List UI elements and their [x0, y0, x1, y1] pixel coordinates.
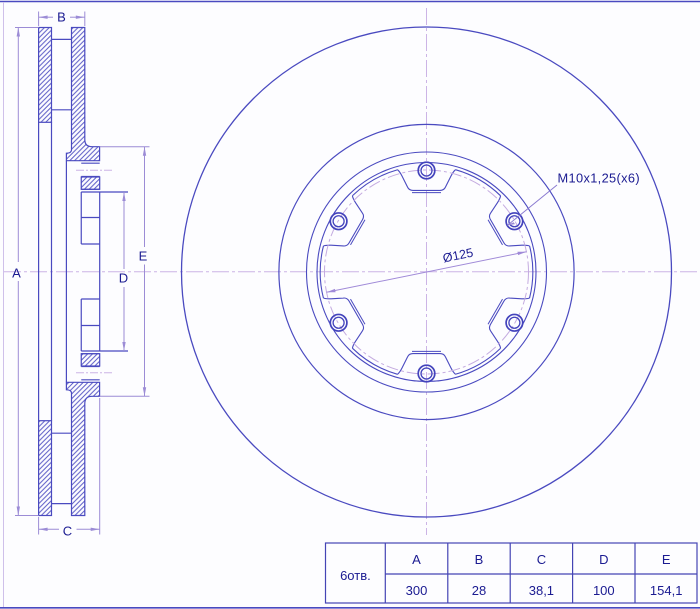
svg-text:300: 300	[406, 583, 428, 598]
svg-text:A: A	[12, 266, 21, 281]
svg-text:D: D	[119, 271, 128, 286]
svg-text:C: C	[63, 524, 72, 539]
svg-text:100: 100	[593, 583, 615, 598]
svg-text:D: D	[599, 552, 608, 567]
svg-text:6отв.: 6отв.	[340, 568, 371, 583]
svg-text:C: C	[537, 552, 546, 567]
svg-text:B: B	[475, 552, 484, 567]
svg-text:A: A	[412, 552, 421, 567]
svg-text:154,1: 154,1	[650, 583, 683, 598]
svg-text:E: E	[139, 249, 148, 264]
svg-text:M10x1,25(x6): M10x1,25(x6)	[558, 171, 640, 186]
svg-text:E: E	[662, 552, 671, 567]
svg-text:38,1: 38,1	[529, 583, 554, 598]
svg-text:B: B	[57, 10, 66, 25]
svg-text:Ø125: Ø125	[442, 246, 475, 266]
svg-text:28: 28	[472, 583, 486, 598]
